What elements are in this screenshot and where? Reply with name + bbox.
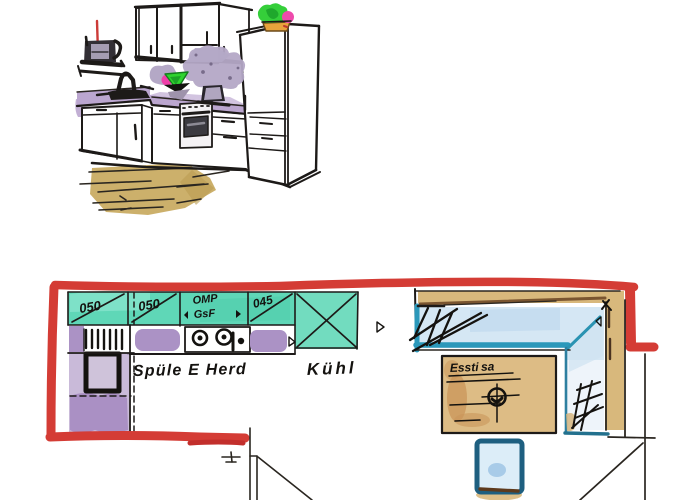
svg-text:Spüle E Herd: Spüle E Herd	[133, 361, 247, 380]
svg-text:GsF: GsF	[193, 308, 215, 321]
svg-text:Essti sa: Essti sa	[450, 359, 495, 375]
svg-text:Kühl: Kühl	[306, 358, 356, 379]
